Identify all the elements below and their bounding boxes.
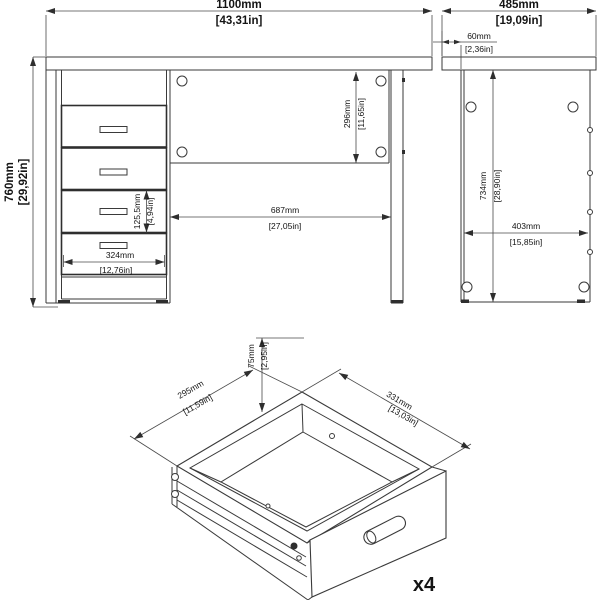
drawer-quantity-label: x4 — [413, 574, 436, 596]
lock-cam-icon — [291, 543, 298, 550]
rail-screw-icon — [266, 504, 270, 508]
cam-hole-icon — [579, 282, 589, 292]
drawer-height-mm-label: 125,5mm — [132, 194, 142, 229]
front-width-dimension: 1100mm [43,31in] — [46, 0, 432, 56]
lock-screw-icon — [297, 556, 302, 561]
panel-depth-in-label: [15,85in] — [510, 237, 543, 247]
side-view: 485mm [19,09in] 60mm [2,36in] 734mm [28,… — [433, 0, 596, 303]
cam-hole-icon — [376, 76, 386, 86]
back-panel-in-label: [11,65in] — [356, 98, 366, 130]
technical-drawing-page: 1100mm [43,31in] 760mm [29,92in] 296mm [… — [0, 0, 600, 600]
cam-hole-icon — [462, 282, 472, 292]
setback-in-label: [2,36in] — [465, 44, 493, 54]
side-depth-mm-label: 485mm — [499, 0, 539, 11]
side-foot — [577, 300, 585, 304]
front-desktop — [46, 57, 432, 70]
panel-depth-mm-label: 403mm — [512, 221, 540, 231]
edge-hole-icon — [588, 250, 593, 255]
knee-space-mm-label: 687mm — [271, 205, 299, 215]
front-left-side-panel — [46, 70, 56, 303]
drawer-height-in-label: [4,94in] — [145, 198, 155, 226]
front-height-dimension: 760mm [29,92in] — [4, 57, 58, 307]
front-width-in-label: [43,31in] — [216, 15, 263, 27]
front-width-mm-label: 1100mm — [216, 0, 261, 11]
pedestal-foot — [58, 300, 70, 304]
side-depth-in-label: [19,09in] — [496, 15, 543, 27]
drawer-width-mm-label: 324mm — [106, 250, 134, 260]
cam-hole-icon — [568, 102, 578, 112]
edge-hole-icon — [588, 171, 593, 176]
edge-hole-icon — [588, 210, 593, 215]
knee-space-in-label: [27,05in] — [269, 221, 302, 231]
front-right-leg — [391, 70, 405, 304]
setback-mm-label: 60mm — [467, 31, 491, 41]
front-height-in-label: [29,92in] — [18, 159, 30, 206]
drawer-view: 75mm [2,95in] 295mm [11,59in] 331mm [13,… — [130, 338, 471, 600]
front-height-mm-label: 760mm — [4, 162, 16, 202]
side-foot — [461, 300, 469, 304]
desk-dimension-drawing: 1100mm [43,31in] 760mm [29,92in] 296mm [… — [0, 0, 600, 600]
back-panel-mm-label: 296mm — [342, 100, 352, 128]
cam-hole-icon — [466, 102, 476, 112]
drawer-inner-height-in-label: [2,95in] — [259, 342, 269, 370]
cam-mark — [402, 150, 405, 154]
cam-mark — [402, 78, 405, 82]
side-panel-depth-dimension: 403mm [15,85in] — [464, 221, 588, 247]
front-knee-space-dimension: 687mm [27,05in] — [170, 205, 391, 231]
drawer-inner-height-mm-label: 75mm — [246, 344, 256, 368]
front-back-panel-dimension: 296mm [11,65in] — [342, 72, 366, 163]
panel-height-mm-label: 734mm — [478, 172, 488, 200]
pedestal-foot — [156, 300, 168, 304]
front-view: 1100mm [43,31in] 760mm [29,92in] 296mm [… — [4, 0, 432, 307]
edge-hole-icon — [588, 128, 593, 133]
cam-hole-icon — [177, 147, 187, 157]
drawer-width-in-label: [12,76in] — [100, 265, 133, 275]
rail-screw-icon — [172, 474, 179, 481]
side-setback-dimension: 60mm [2,36in] — [433, 31, 497, 69]
side-panel-height-dimension: 734mm [28,90in] — [478, 70, 502, 302]
leg-foot — [392, 300, 404, 304]
back-wall-hole-icon — [330, 434, 335, 439]
cam-hole-icon — [376, 147, 386, 157]
side-desktop — [442, 57, 596, 70]
cam-hole-icon — [177, 76, 187, 86]
rail-screw-icon — [172, 491, 179, 498]
panel-height-in-label: [28,90in] — [492, 170, 502, 203]
